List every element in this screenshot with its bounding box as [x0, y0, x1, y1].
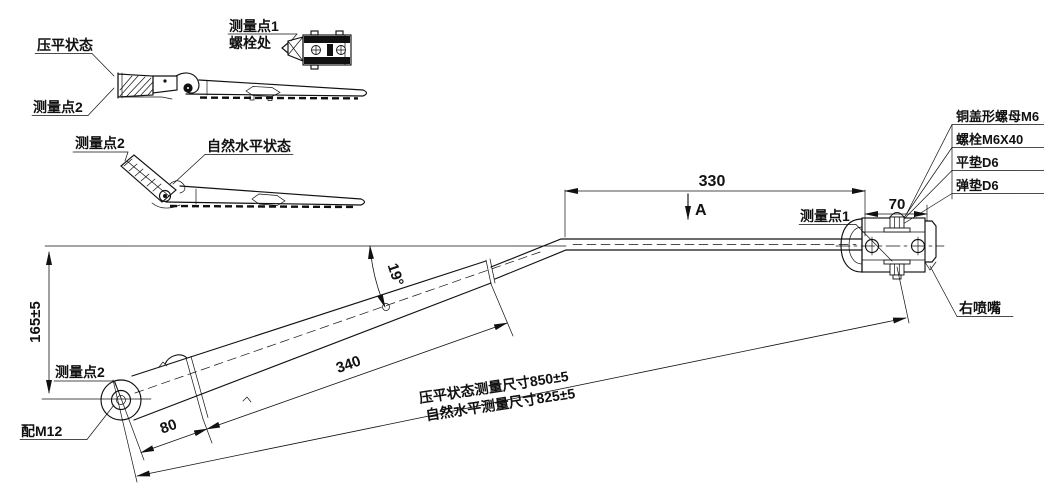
dimensions: 330 70 165±5 80 340 19° 压平状态测量尺寸850±5 自然… — [27, 173, 927, 476]
nozzle-label: 右喷嘴 — [958, 300, 1001, 316]
natural-point2-label: 测量点2 — [75, 135, 125, 151]
dim-80: 80 — [158, 416, 179, 438]
flat-blade — [186, 80, 367, 101]
nozzle-bracket — [836, 213, 944, 280]
natural-state-label: 自然水平状态 — [207, 138, 291, 154]
total-length-labels: 压平状态测量尺寸850±5 自然水平测量尺寸825±5 — [418, 367, 576, 424]
dim-330: 330 — [699, 173, 726, 190]
dim-340: 340 — [334, 353, 363, 377]
main-point2-label: 测量点2 — [55, 364, 105, 380]
parts-list: 铜盖形螺母M6 螺栓M6X40 平垫D6 弹垫D6 — [895, 109, 1044, 229]
bottom-bolt — [884, 260, 910, 279]
bolt-detail-part — [282, 31, 351, 69]
flat-state-leader — [92, 54, 114, 77]
wiper-arm-drawing: 压平状态 测量点2 — [0, 0, 1044, 500]
extension-lines — [42, 190, 927, 482]
natural-state-leader — [173, 155, 205, 185]
pivot-fit-label: 配M12 — [21, 423, 62, 439]
natural-blade — [166, 186, 365, 207]
part-item-bolt: 螺栓M6X40 — [956, 132, 1023, 147]
dim-165: 165±5 — [27, 301, 44, 343]
view-bolt-detail: 测量点1 螺栓处 — [228, 18, 351, 69]
flat-arm-head — [118, 73, 199, 99]
natural-point2-leader — [125, 152, 128, 161]
part-item-flat-washer: 平垫D6 — [956, 155, 999, 170]
dim-70: 70 — [889, 196, 906, 213]
flat-point2-label: 测量点2 — [33, 99, 83, 115]
main-view: 330 70 165±5 80 340 19° 压平状态测量尺寸850±5 自然… — [20, 173, 1013, 482]
dim-19deg: 19° — [384, 261, 407, 288]
parts-list-leaders — [895, 125, 952, 230]
technical-drawing-canvas: 压平状态 测量点2 — [0, 0, 1044, 500]
flat-point2-leader — [88, 88, 114, 116]
section-marker-label: A — [695, 202, 707, 219]
part-item-cap-nut: 铜盖形螺母M6 — [955, 109, 1039, 124]
flat-state-label: 压平状态 — [37, 37, 93, 53]
part-item-spring-washer: 弹垫D6 — [956, 178, 999, 193]
detail-bolt-label: 螺栓处 — [229, 35, 272, 51]
view-natural-state: 测量点2 自然水平状态 — [73, 135, 365, 208]
main-point1-label: 测量点1 — [800, 208, 850, 224]
detail-point1-label: 测量点1 — [229, 18, 279, 34]
